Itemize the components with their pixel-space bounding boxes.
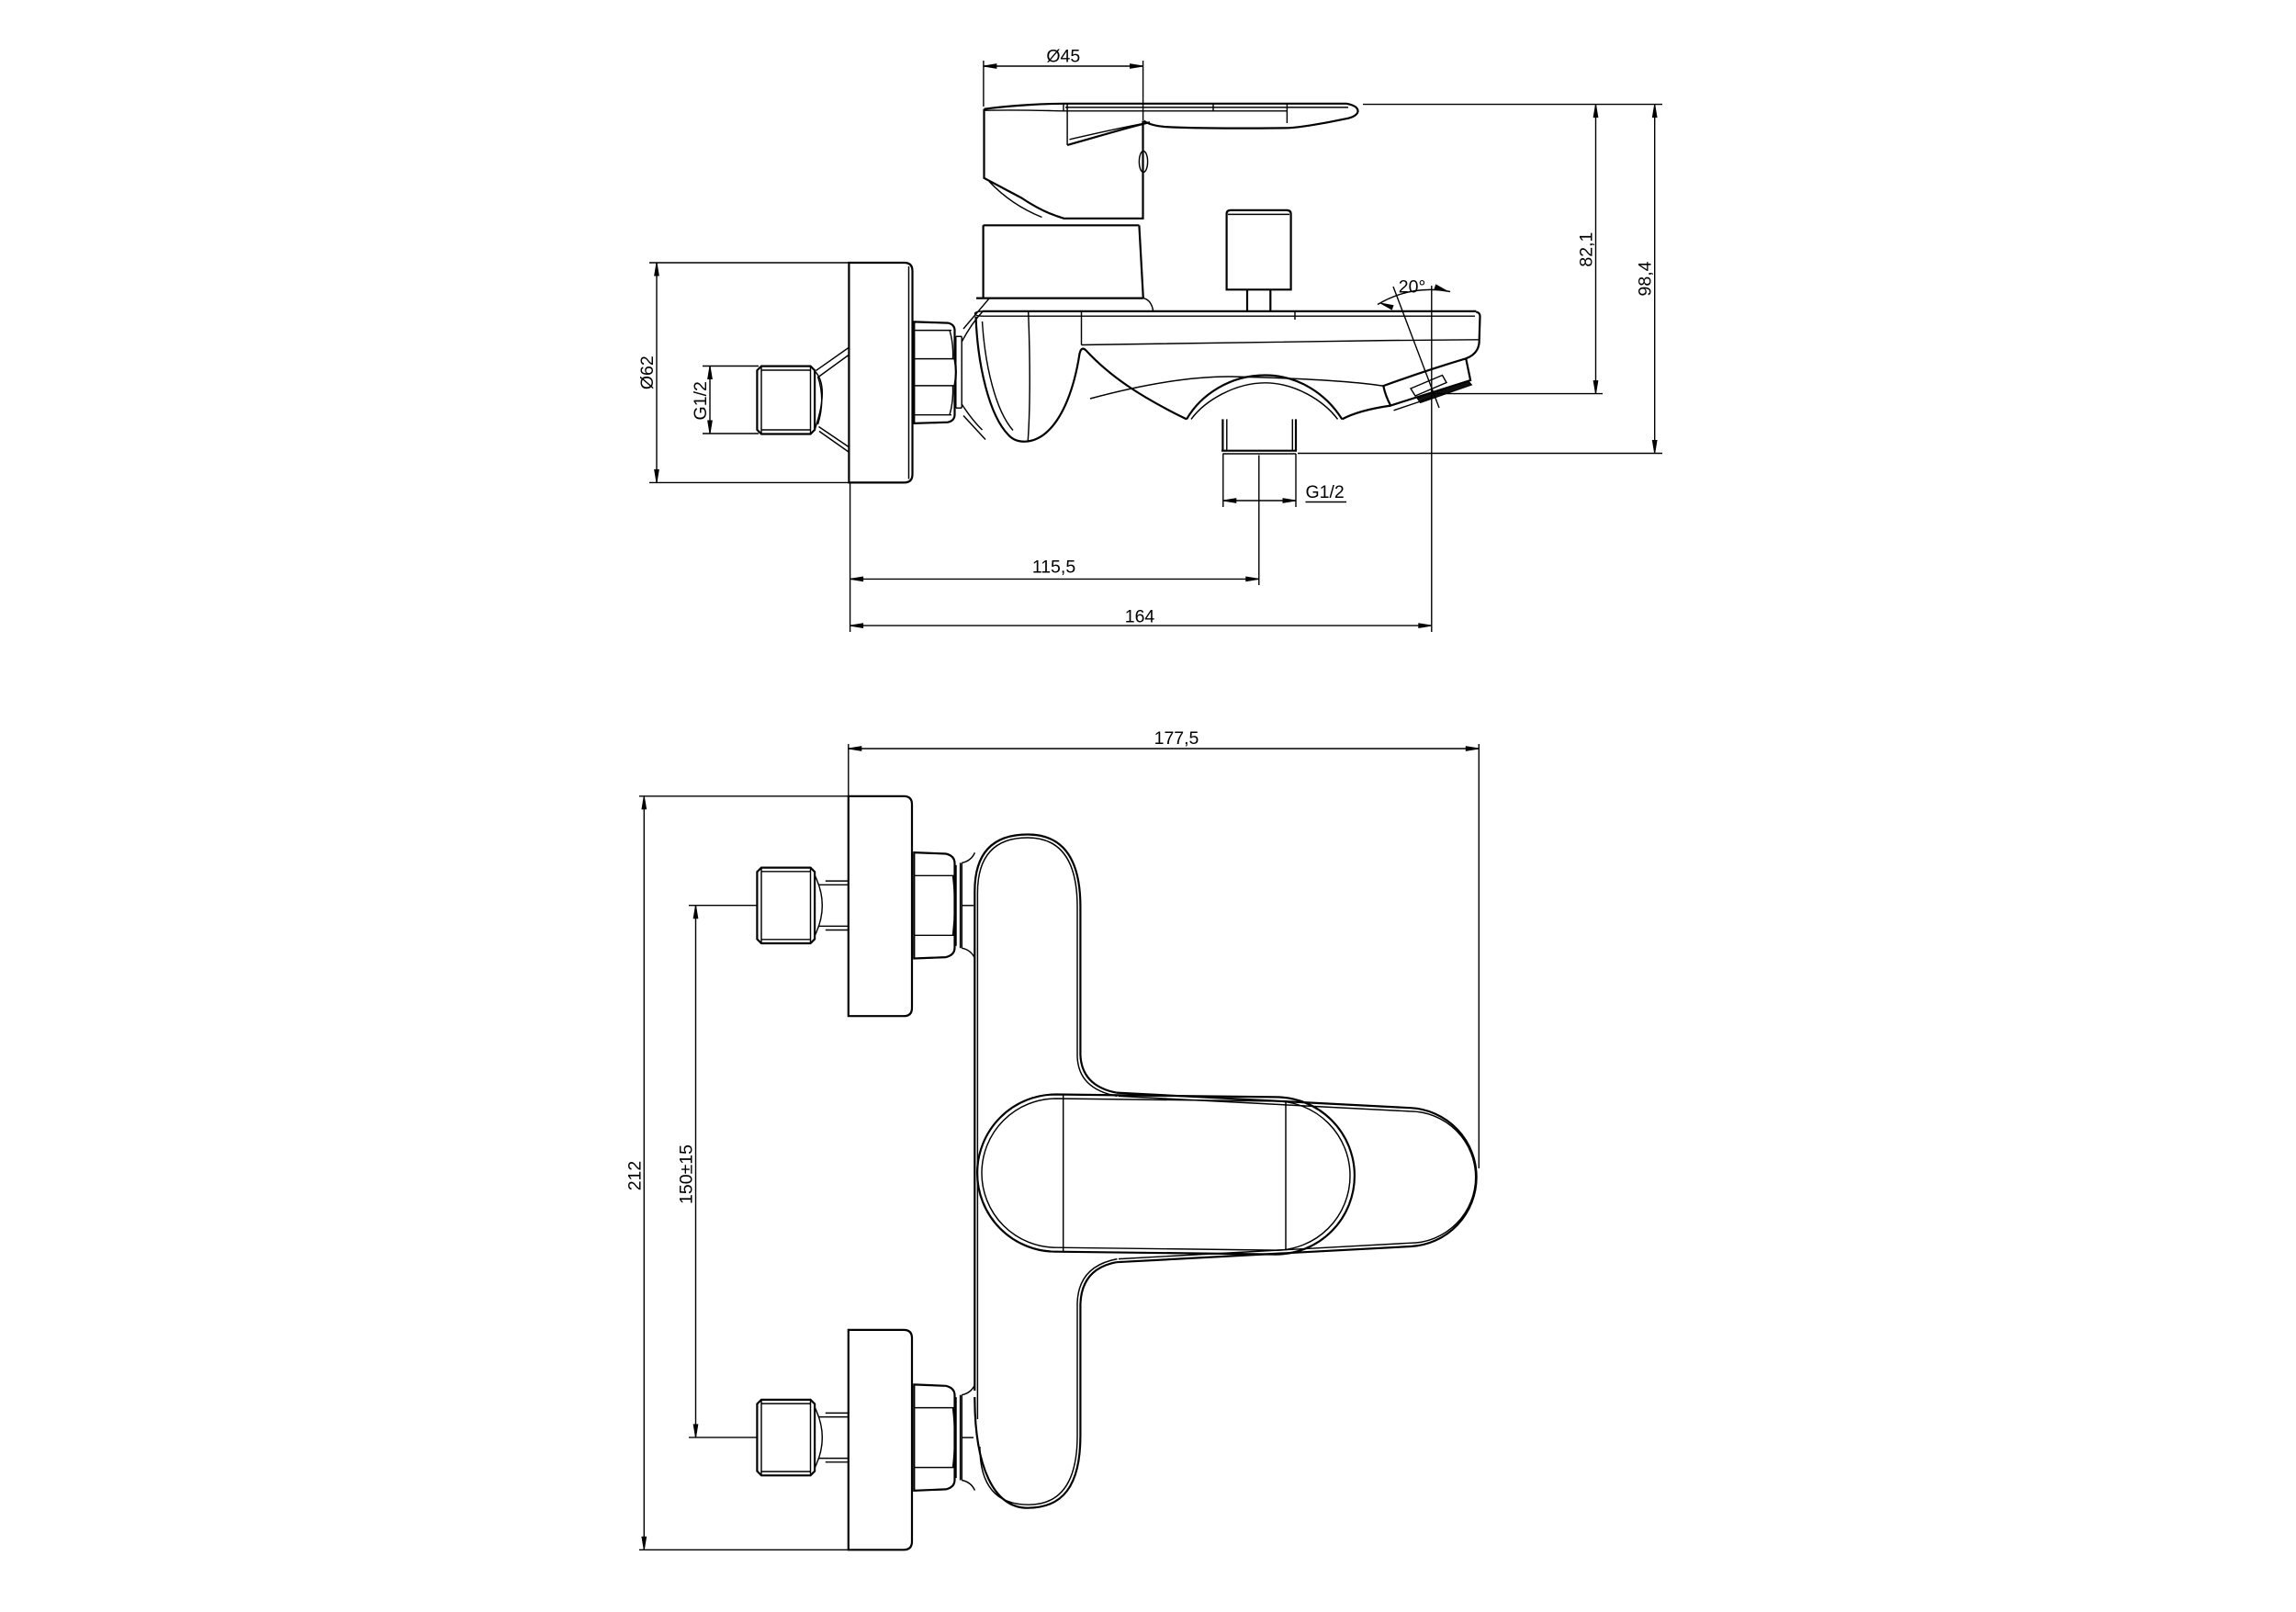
svg-text:212: 212 [625, 1161, 645, 1191]
svg-text:Ø62: Ø62 [637, 355, 658, 389]
svg-text:177,5: 177,5 [1154, 728, 1199, 749]
svg-text:20°: 20° [1399, 277, 1426, 298]
svg-text:G1/2: G1/2 [691, 381, 711, 420]
svg-text:Ø45: Ø45 [1046, 47, 1080, 67]
svg-text:164: 164 [1125, 607, 1155, 627]
svg-text:150±15: 150±15 [677, 1144, 697, 1204]
svg-text:G1/2: G1/2 [1306, 482, 1345, 502]
svg-text:82,1: 82,1 [1577, 232, 1597, 267]
svg-text:115,5: 115,5 [1032, 558, 1076, 578]
svg-text:98,4: 98,4 [1636, 261, 1656, 296]
